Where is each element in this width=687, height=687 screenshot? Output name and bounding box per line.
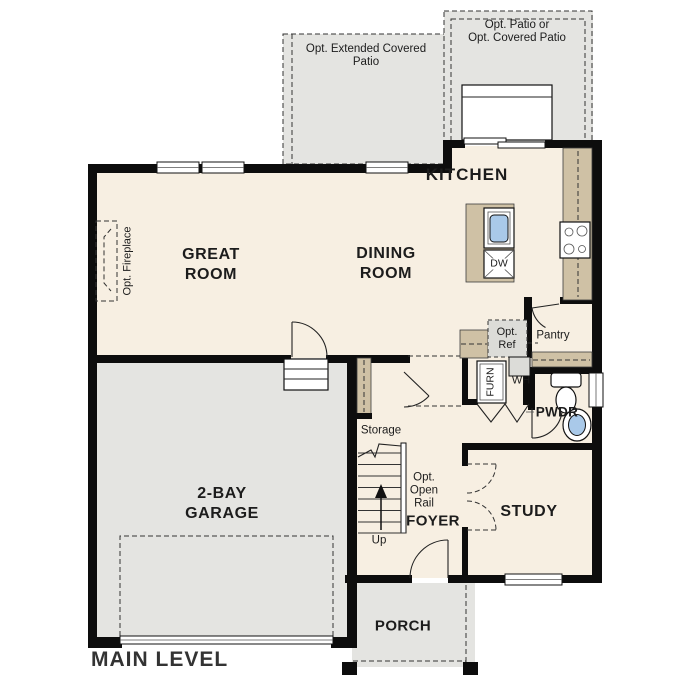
powder-window <box>589 373 603 407</box>
floor-plan-canvas: GREAT ROOM DINING ROOM KITCHEN 2-BAY GAR… <box>0 0 687 687</box>
kitchen-island <box>466 204 514 282</box>
study-label: STUDY <box>500 502 557 522</box>
pantry-shelf <box>532 352 592 367</box>
furnace-label: FURN <box>486 367 497 396</box>
floor-plan-drawing <box>0 0 687 687</box>
dining-window <box>366 162 408 173</box>
kitchen-label: KITCHEN <box>426 165 509 185</box>
garage-entry-steps <box>284 359 328 390</box>
great-room-window <box>157 162 199 173</box>
porch-post <box>463 662 478 675</box>
up-label: Up <box>372 535 387 548</box>
great-room-window <box>202 162 244 173</box>
pantry-label: Pantry <box>536 330 569 343</box>
garage-label: 2-BAY GARAGE <box>185 484 259 524</box>
water-heater-icon <box>509 357 530 376</box>
study-window <box>505 574 562 585</box>
dining-room-label: DINING ROOM <box>356 244 416 284</box>
storage-closet <box>355 358 372 419</box>
water-heater-label: WH <box>512 375 530 388</box>
mudroom-cabinet <box>460 330 488 358</box>
porch-post <box>342 662 357 675</box>
outdoor-structure <box>462 85 552 140</box>
cooktop-icon <box>560 222 590 258</box>
powder-room-label: PWDR <box>536 405 578 420</box>
optional-open-rail-label: Opt. Open Rail <box>410 472 438 511</box>
great-room-label: GREAT ROOM <box>182 245 240 285</box>
foyer-label: FOYER <box>406 513 460 530</box>
sink-icon <box>484 208 514 248</box>
dishwasher-label: DW <box>489 259 509 270</box>
patio-right-label: Opt. Patio or Opt. Covered Patio <box>468 19 566 45</box>
plan-title: MAIN LEVEL <box>91 648 228 672</box>
porch-label: PORCH <box>375 618 431 635</box>
patio-left-label: Opt. Extended Covered Patio <box>306 43 426 69</box>
optional-fireplace-label: Opt. Fireplace <box>122 226 135 295</box>
optional-ref-label: Opt. Ref <box>497 326 518 352</box>
storage-label: Storage <box>361 425 401 438</box>
